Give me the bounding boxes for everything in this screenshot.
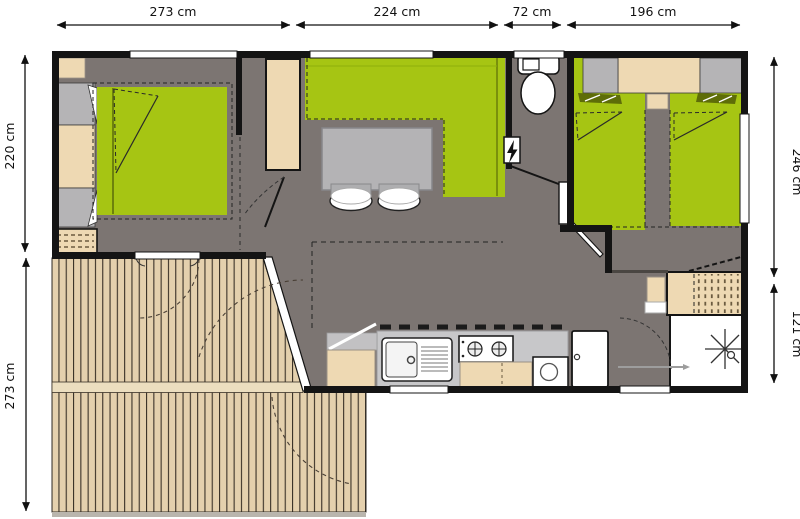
kitchen-sink [382,338,452,381]
window-bathroom [620,386,670,393]
window-kitchen [390,386,448,393]
double-bed [97,87,227,215]
dim-label-right-1: 246 cm [790,149,800,196]
aisle-step [647,94,668,109]
window-bedroom [130,51,237,58]
stool [378,184,420,211]
wall-bedroom-partition [236,51,242,135]
headboard-console [53,125,95,188]
wall-bottom [304,386,748,393]
window-wc [514,51,564,58]
wall-bathroom-left [605,225,612,273]
kitchen [327,324,608,388]
deck-cross-band [52,382,303,393]
wall-bathroom-top [612,270,668,273]
dim-label-left-2: 273 cm [2,363,17,410]
shelf-small [645,302,666,313]
dim-label-top-3: 72 cm [513,4,552,19]
wall-twin-bottom [560,225,612,232]
sofa-top [305,58,505,120]
electrical-panel [504,137,520,163]
wardrobe-hatch [695,274,741,313]
shelf [58,58,85,78]
base-cabinet [327,350,375,388]
sofa-right [443,120,505,197]
gas-hob [459,336,513,362]
washbasin-unit [533,357,568,387]
floorplan-drawing: 273 cm 224 cm 72 cm 196 cm 220 cm 273 cm… [0,0,800,519]
pillow [700,58,742,93]
dim-label-left-1: 220 cm [2,123,17,170]
toilet-bowl [521,72,555,114]
wardrobe [266,59,300,170]
toilet-flush-button [523,59,539,70]
wall-wc-right [567,51,574,232]
shower-drain [728,352,735,359]
cabinet-small [647,277,665,302]
dim-label-right-2: 121 cm [790,311,800,358]
dim-label-top-4: 196 cm [630,4,677,19]
window-twin-bedroom [740,114,749,223]
wall-left [52,51,59,258]
window-living [310,51,433,58]
stool [330,184,372,211]
shower-spray-icon [705,329,745,369]
window-deck-door [135,252,200,259]
fridge [572,331,608,387]
base-cabinet [460,362,532,388]
deck-edge-strip [52,512,366,517]
dim-label-top-1: 273 cm [150,4,197,19]
bedside-console [618,57,700,93]
shower [670,315,745,387]
floorplan-canvas: 273 cm 224 cm 72 cm 196 cm 220 cm 273 cm… [0,0,800,519]
pillow [53,188,95,227]
dining-table [322,128,432,190]
pillow [583,58,618,93]
dim-label-top-2: 224 cm [374,4,421,19]
